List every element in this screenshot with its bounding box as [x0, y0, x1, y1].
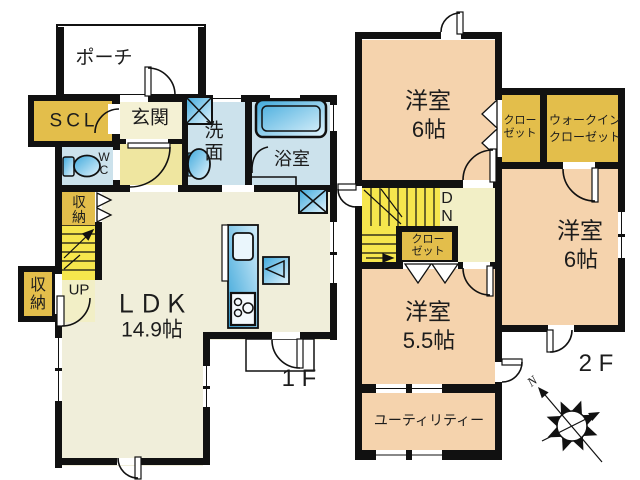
- label-wc-1: W: [98, 151, 109, 163]
- door-bedroom-right-bottom: [547, 330, 572, 352]
- label-utility: ユーティリティー: [374, 413, 484, 427]
- label-closet-top-2: ゼット: [504, 129, 537, 140]
- label-porch: ポーチ: [75, 49, 132, 68]
- label-storage-left-1: 収: [30, 278, 46, 294]
- cabinet-x-icon: [299, 189, 327, 213]
- label-closet-top-1: クロー: [504, 116, 537, 127]
- room-bedroom55: [362, 269, 495, 384]
- label-bathroom: 浴室: [274, 150, 310, 168]
- label-closet-stairs-1: クロー: [412, 235, 445, 246]
- label-scl: SCL: [50, 112, 99, 131]
- bathtub-icon: [256, 100, 326, 137]
- label-storage-stairs-1: 収: [72, 195, 86, 209]
- kitchen-sink-icon: [233, 233, 253, 260]
- label-floor2: 2 F: [579, 352, 614, 376]
- refrigerator-icon: [263, 257, 289, 284]
- floor-plan-drawing: [0, 0, 640, 480]
- label-bedroom-right-1: 洋室: [557, 220, 603, 243]
- label-stairs-up: UP: [69, 283, 90, 298]
- label-closet-stairs-2: ゼット: [412, 247, 445, 258]
- room-bedroom6-right: [502, 169, 618, 325]
- door-bedroom55-right: [502, 359, 522, 382]
- label-ldk-size: 14.9帖: [121, 320, 183, 341]
- floor-plan-canvas: ポーチ SCL 玄関 W C 洗 面 浴室 収 納 収 納 UP ＬＤＫ 14.…: [0, 0, 640, 480]
- label-bedroom-top-1: 洋室: [405, 90, 451, 113]
- door-bedroom-top-balcony: [441, 12, 463, 34]
- label-ldk: ＬＤＫ: [113, 293, 188, 318]
- label-bedroom55-1: 洋室: [405, 301, 451, 324]
- door-stairs-2f-left: [338, 184, 356, 207]
- label-stairs-dn-2: N: [441, 209, 453, 225]
- label-bedroom55-2: 5.5帖: [403, 330, 456, 352]
- label-bedroom-right-2: 6帖: [564, 249, 598, 271]
- label-floor1: 1 F: [282, 367, 317, 391]
- label-storage-left-2: 納: [30, 296, 46, 312]
- label-wic-2: クローゼット: [549, 131, 621, 143]
- label-senmen-1: 洗: [204, 122, 223, 141]
- label-bedroom-top-2: 6帖: [412, 119, 446, 141]
- room-hall: [118, 143, 182, 185]
- label-genkan: 玄関: [131, 109, 169, 128]
- kitchen-counter: [222, 225, 258, 328]
- toilet-icon: [63, 156, 100, 177]
- label-wic-1: ウォークイン: [549, 114, 621, 126]
- stove-icon: [231, 293, 255, 325]
- room-walkin-closet: [547, 95, 618, 162]
- label-storage-stairs-2: 納: [72, 210, 86, 224]
- stairs-2f-upper: [362, 188, 440, 226]
- label-wc-2: C: [100, 164, 109, 176]
- compass-icon: [535, 384, 607, 462]
- label-senmen-2: 面: [204, 144, 223, 163]
- label-stairs-dn-1: D: [441, 191, 453, 207]
